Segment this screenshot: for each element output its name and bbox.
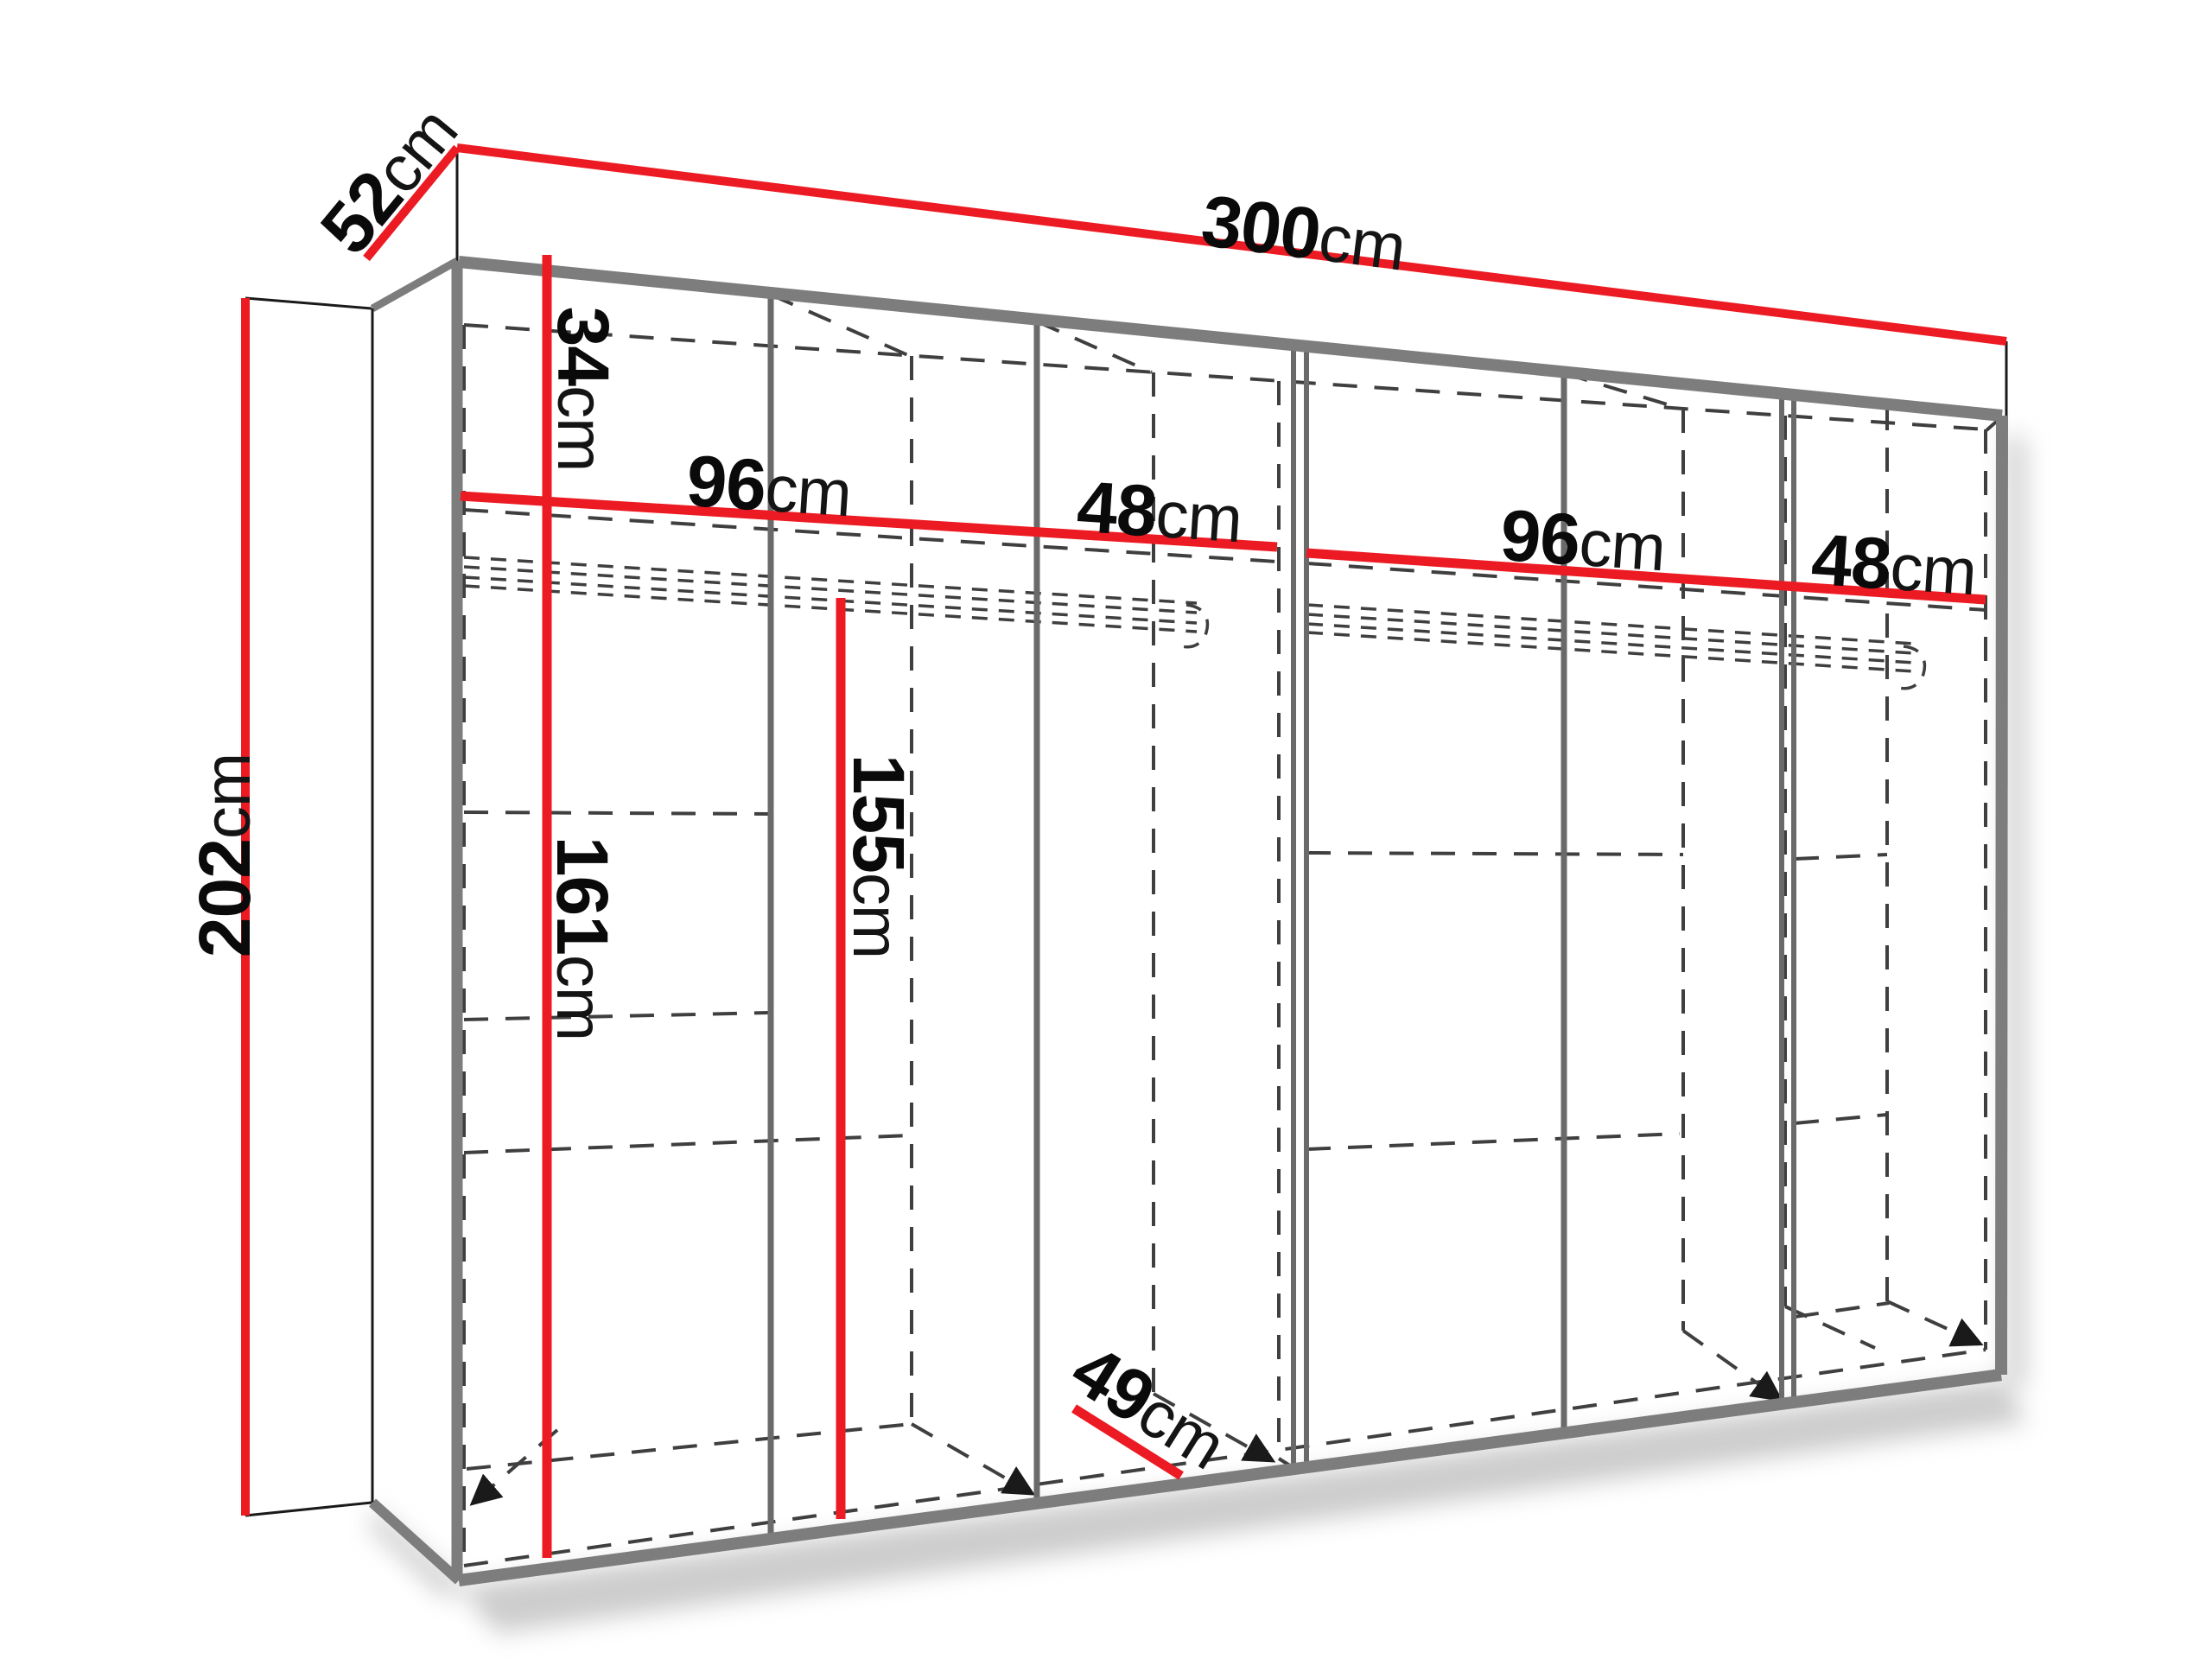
dim-label-depth: 52cm (305, 90, 473, 269)
dim-label-rod-mid: 155cm (838, 754, 919, 958)
dim-label-height: 202cm (184, 753, 265, 957)
partition-lines (771, 294, 1794, 1539)
dim-label-comp3: 96cm (1498, 494, 1669, 586)
dim-label-width: 300cm (1197, 180, 1409, 286)
dim-label-comp1: 96cm (684, 440, 855, 531)
dim-label-rod-left: 161cm (542, 836, 623, 1040)
dim-label-comp2: 48cm (1075, 466, 1245, 557)
wardrobe-dimension-diagram: 300cm 52cm 202cm 34cm 96cm 48cm 96cm 48c… (0, 0, 2212, 1659)
dim-label-comp4: 48cm (1809, 518, 1980, 610)
dim-label-top-shelf: 34cm (543, 307, 624, 472)
diagram-canvas: 300cm 52cm 202cm 34cm 96cm 48cm 96cm 48c… (0, 0, 2212, 1659)
